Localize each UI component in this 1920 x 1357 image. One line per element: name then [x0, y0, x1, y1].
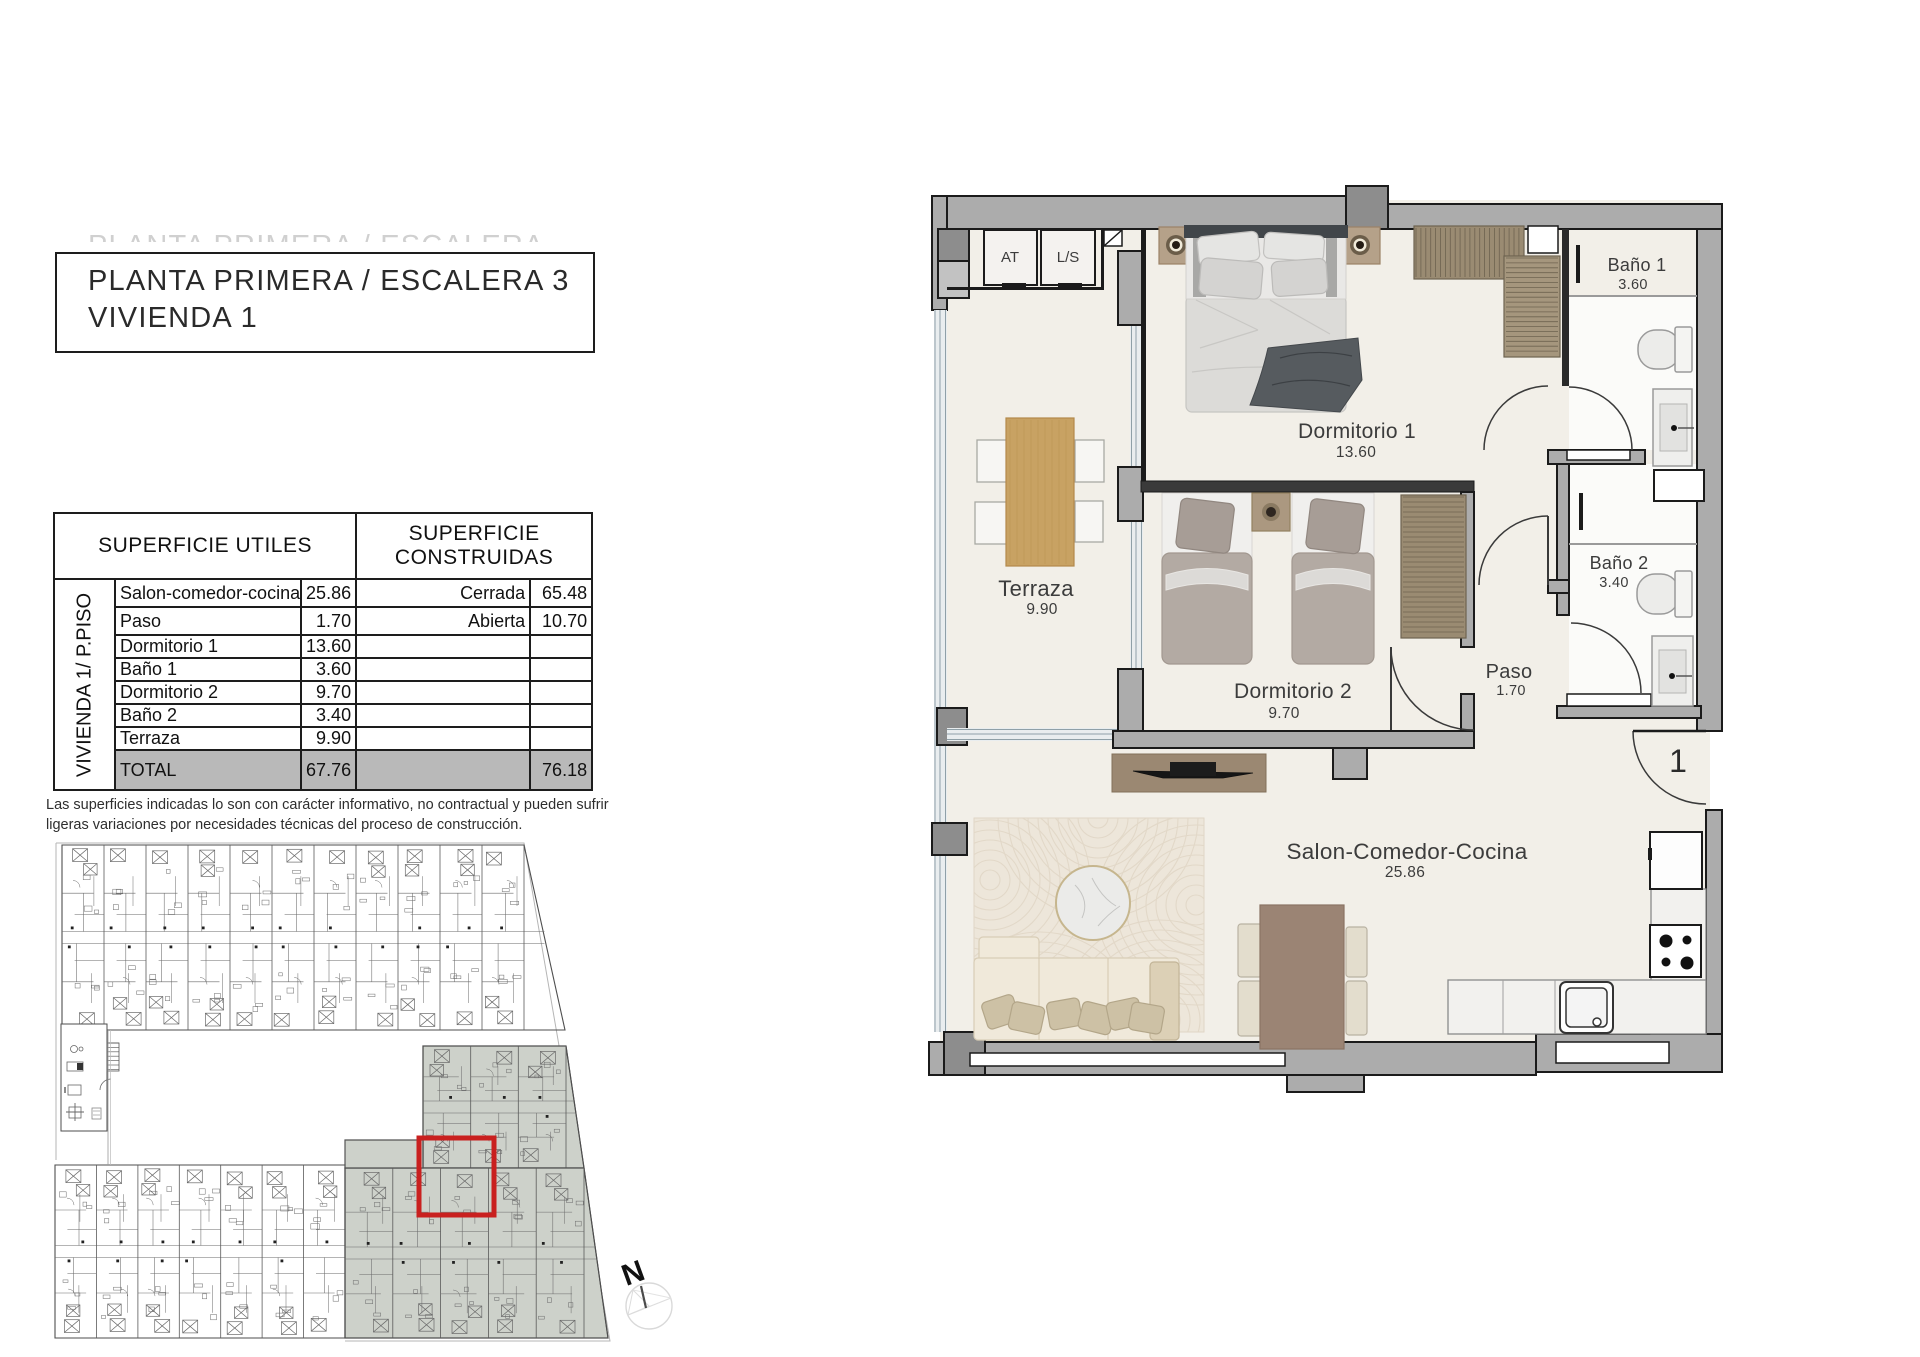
svg-text:9.70: 9.70	[1268, 705, 1299, 722]
svg-text:1.70: 1.70	[1496, 683, 1525, 699]
svg-text:1: 1	[1669, 743, 1687, 779]
svg-text:Baño 1: Baño 1	[1608, 255, 1667, 275]
svg-text:AT: AT	[1001, 249, 1019, 266]
svg-text:3.60: 3.60	[1618, 277, 1647, 293]
svg-text:25.86: 25.86	[1385, 864, 1425, 881]
svg-text:L/S: L/S	[1057, 249, 1080, 266]
svg-text:Terraza: Terraza	[998, 576, 1074, 601]
svg-text:9.90: 9.90	[1026, 601, 1057, 618]
svg-text:Baño 2: Baño 2	[1590, 553, 1649, 573]
svg-text:Dormitorio 2: Dormitorio 2	[1234, 680, 1352, 703]
svg-text:Paso: Paso	[1486, 661, 1533, 683]
svg-text:Dormitorio 1: Dormitorio 1	[1298, 420, 1416, 443]
svg-text:13.60: 13.60	[1336, 444, 1376, 461]
svg-text:Salon-Comedor-Cocina: Salon-Comedor-Cocina	[1286, 839, 1527, 864]
svg-text:3.40: 3.40	[1599, 575, 1628, 591]
